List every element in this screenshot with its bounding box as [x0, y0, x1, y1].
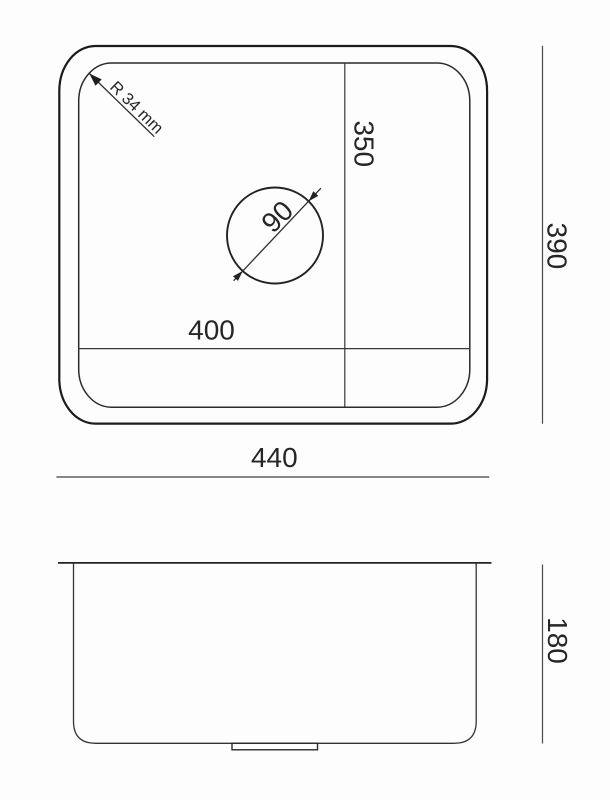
svg-text:350: 350: [349, 120, 380, 167]
svg-text:180: 180: [542, 617, 573, 664]
svg-text:90: 90: [255, 195, 299, 239]
svg-text:400: 400: [188, 315, 235, 346]
svg-text:390: 390: [542, 223, 573, 270]
svg-text:440: 440: [251, 442, 298, 473]
svg-text:R 34 mm: R 34 mm: [106, 78, 166, 138]
